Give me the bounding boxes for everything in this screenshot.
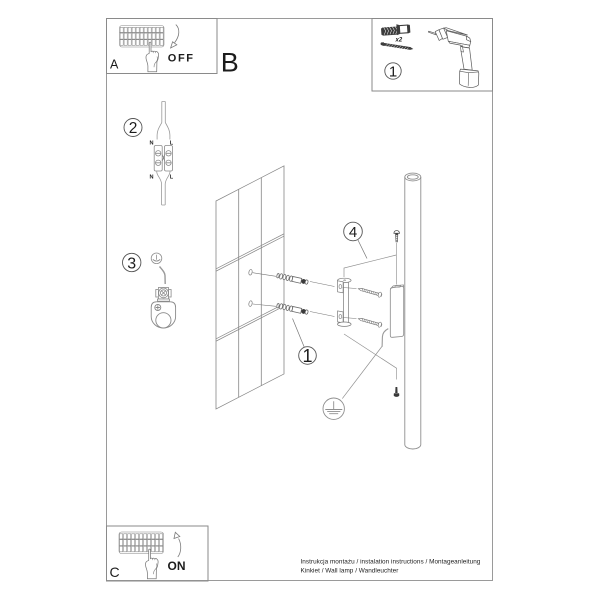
svg-text:Kinkiet / Wall lamp / Wandleuc: Kinkiet / Wall lamp / Wandleuchter [301, 567, 400, 574]
svg-text:A: A [110, 58, 119, 72]
svg-text:2: 2 [129, 120, 138, 137]
svg-text:3: 3 [127, 255, 136, 272]
svg-text:N: N [150, 175, 154, 181]
svg-text:N: N [150, 141, 154, 147]
svg-text:C: C [110, 564, 120, 580]
svg-text:x2: x2 [395, 38, 403, 44]
svg-text:1: 1 [389, 63, 397, 80]
svg-text:1: 1 [302, 346, 312, 366]
svg-text:L: L [170, 175, 174, 181]
svg-text:OFF: OFF [168, 53, 195, 65]
svg-text:B: B [221, 48, 239, 78]
svg-text:ON: ON [168, 559, 186, 573]
svg-text:Instrukcja montażu / instalati: Instrukcja montażu / instalation instruc… [301, 559, 481, 566]
svg-text:4: 4 [349, 224, 357, 241]
